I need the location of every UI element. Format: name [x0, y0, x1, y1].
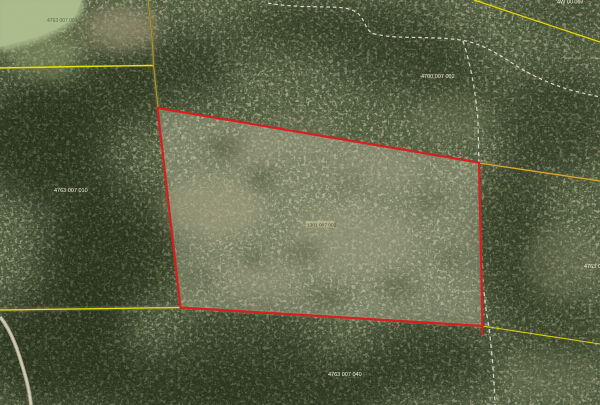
- svg-text:4763 007 040: 4763 007 040: [328, 372, 362, 378]
- svg-text:4763 007 001: 4763 007 001: [47, 18, 78, 24]
- svg-text:4763 007 010: 4763 007 010: [54, 188, 88, 194]
- svg-text:4763 00: 4763 00: [584, 264, 600, 270]
- svg-text:4W 00 007: 4W 00 007: [557, 0, 584, 6]
- svg-text:4700 007 002: 4700 007 002: [421, 74, 455, 80]
- svg-text:1301 007 002: 1301 007 002: [307, 222, 337, 228]
